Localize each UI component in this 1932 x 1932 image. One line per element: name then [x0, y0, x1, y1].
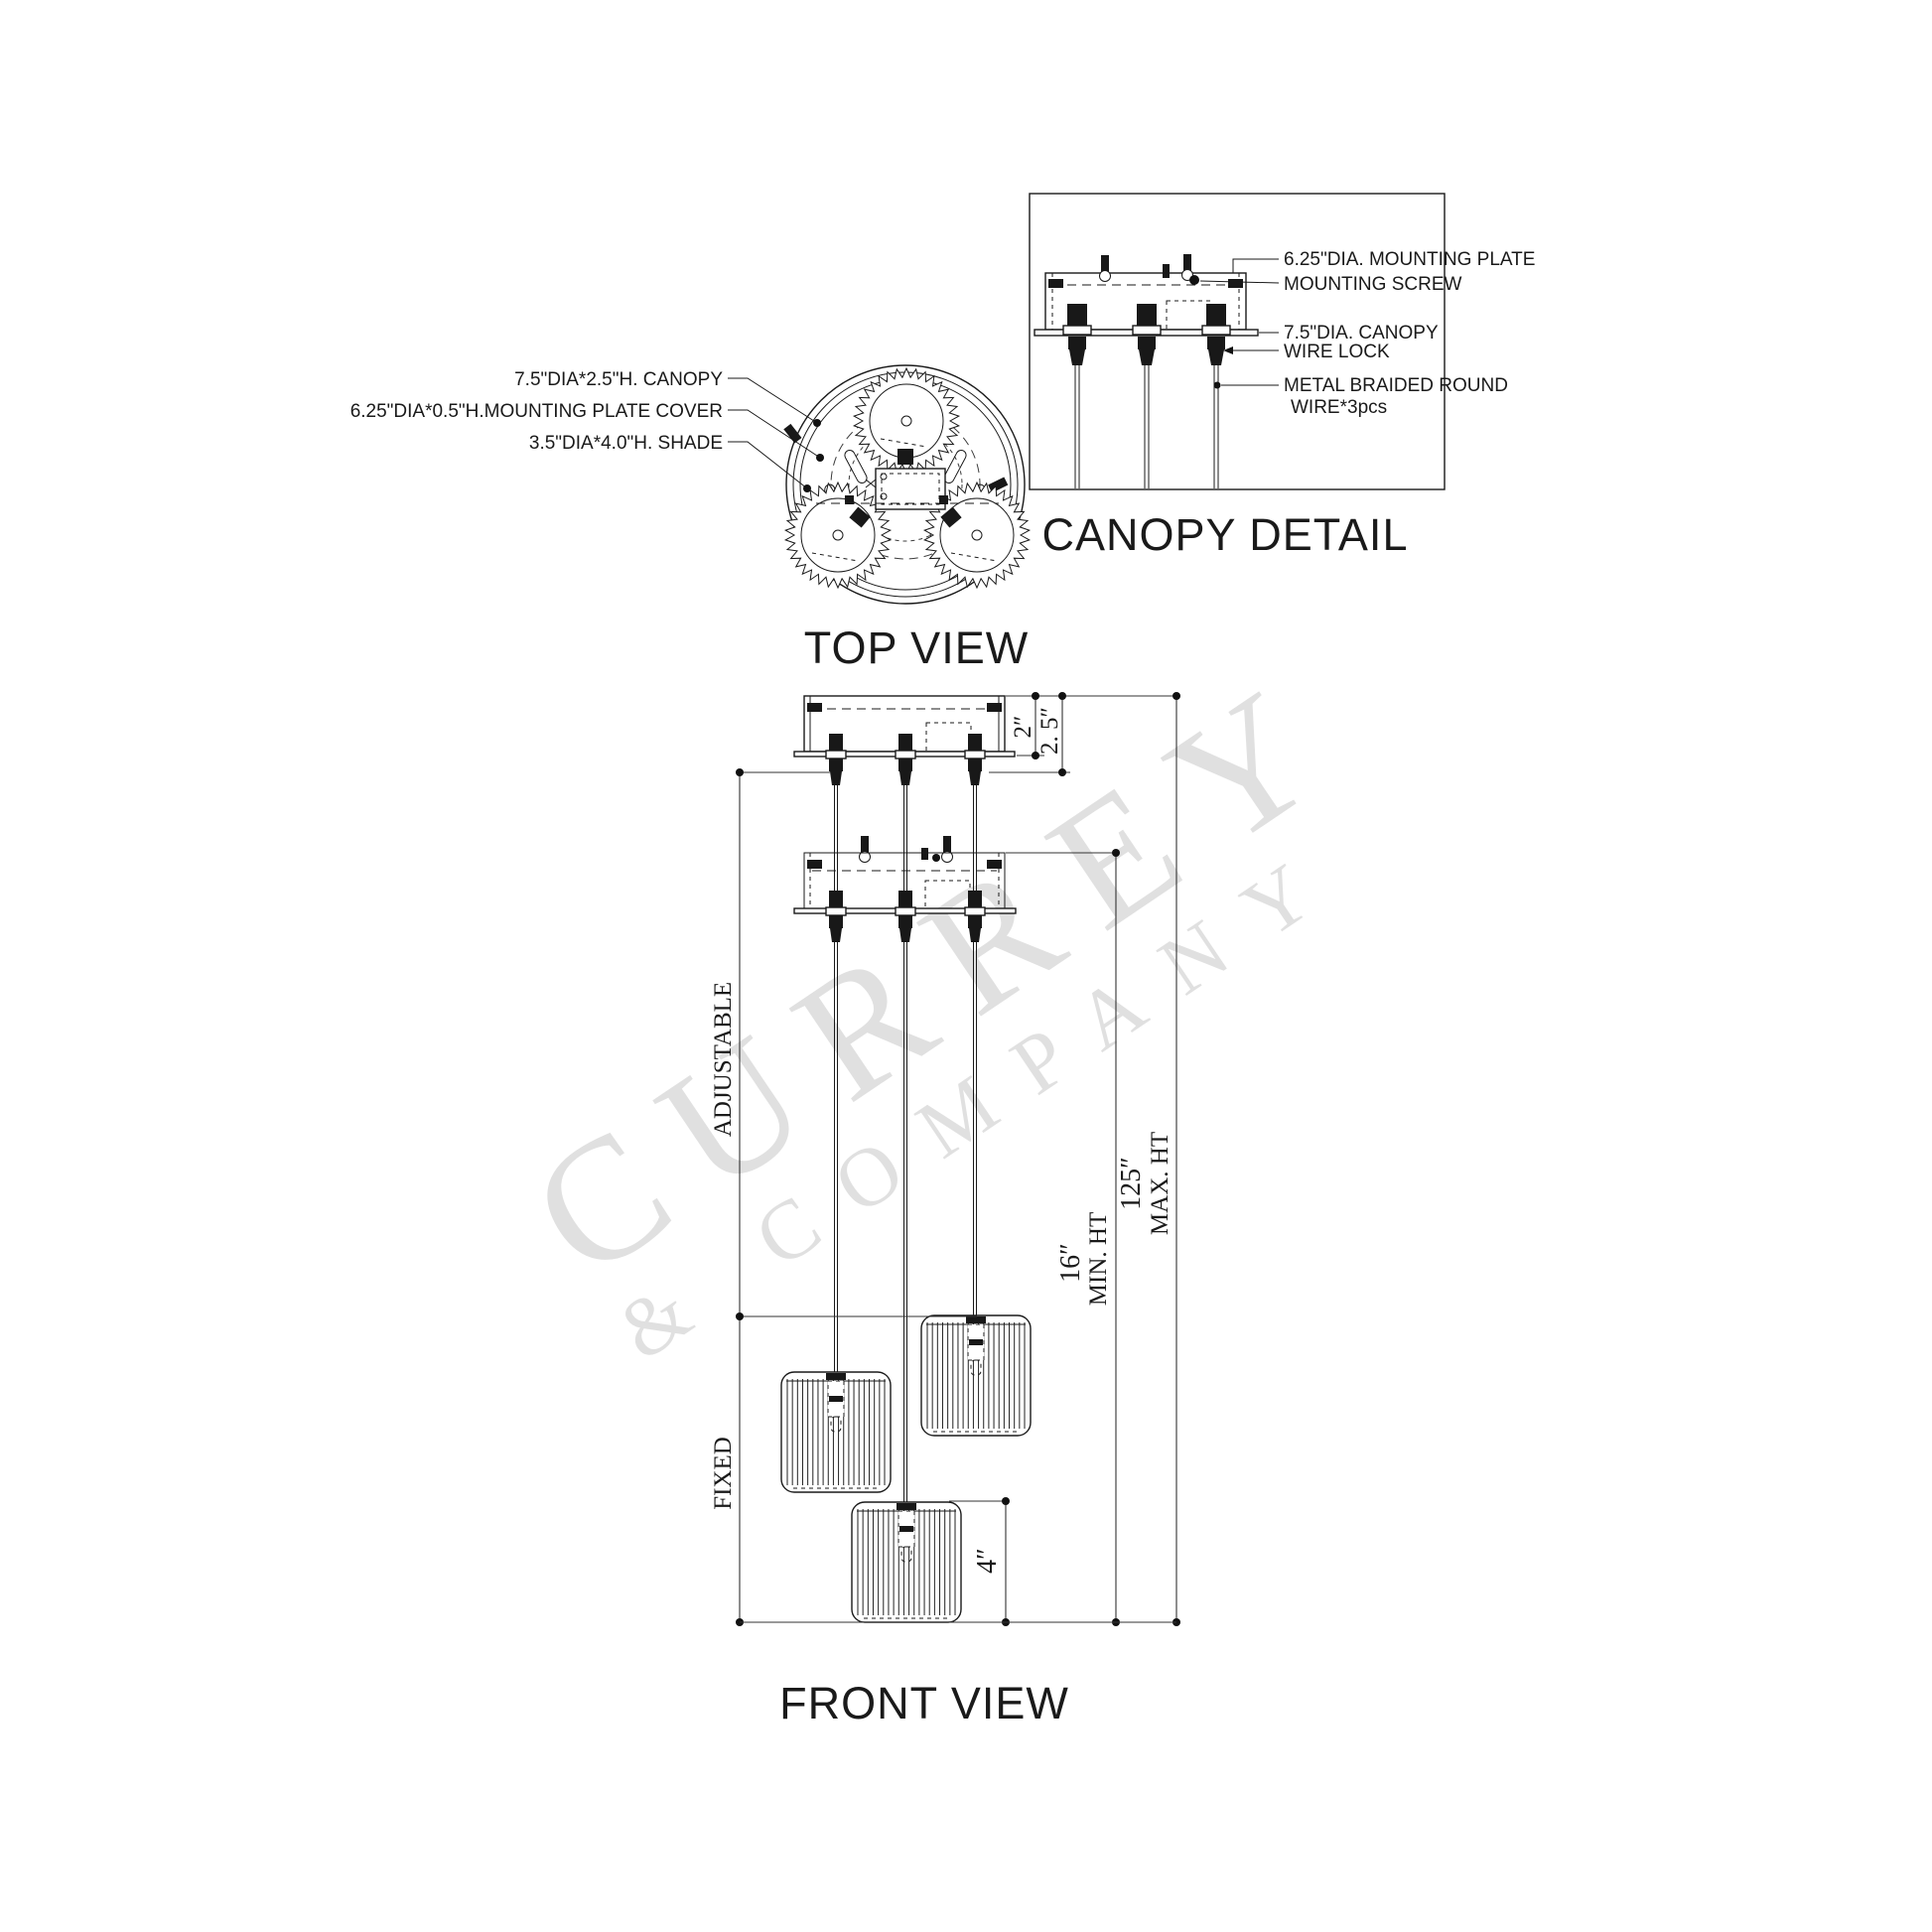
shade-bottom [852, 1502, 961, 1622]
dim-shade-height: 4″ [972, 1548, 1003, 1574]
label-detail-wire-1: METAL BRAIDED ROUND [1284, 375, 1508, 396]
top-view-title: TOP VIEW [804, 622, 1029, 673]
dim-canopy-total-height: 2. 5″ [1036, 707, 1063, 755]
dim-canopy-plate-height: 2″ [1010, 716, 1036, 739]
shade-left [781, 1372, 891, 1492]
front-view-title: FRONT VIEW [779, 1678, 1069, 1728]
top-view-labels: 7.5"DIA*2.5"H. CANOPY 6.25"DIA*0.5"H.MOU… [350, 369, 824, 492]
top-view: 7.5"DIA*2.5"H. CANOPY 6.25"DIA*0.5"H.MOU… [350, 365, 1030, 673]
label-mounting-plate-cover: 6.25"DIA*0.5"H.MOUNTING PLATE COVER [350, 401, 723, 422]
label-detail-wire-2: WIRE*3pcs [1291, 397, 1387, 418]
dim-min-height: 16″ [1055, 1243, 1086, 1283]
label-detail-wire-lock: WIRE LOCK [1284, 342, 1390, 362]
dim-adjustable: ADJUSTABLE [710, 982, 737, 1137]
label-shade: 3.5"DIA*4.0"H. SHADE [529, 433, 723, 454]
label-canopy: 7.5"DIA*2.5"H. CANOPY [514, 369, 723, 390]
label-detail-mounting-screw: MOUNTING SCREW [1284, 274, 1462, 295]
dim-fixed: FIXED [710, 1437, 737, 1510]
drawing-sheet: CURREY & COMPANY [0, 0, 1932, 1932]
canopy-detail: 6.25"DIA. MOUNTING PLATE MOUNTING SCREW … [1030, 194, 1535, 560]
shade-right [921, 1315, 1031, 1436]
dim-max-height: 125″ [1116, 1157, 1147, 1210]
label-detail-mounting-plate: 6.25"DIA. MOUNTING PLATE [1284, 249, 1535, 270]
label-detail-canopy: 7.5"DIA. CANOPY [1284, 323, 1439, 344]
dim-max-height-label: MAX. HT [1147, 1132, 1173, 1235]
canopy-detail-title: CANOPY DETAIL [1042, 509, 1409, 560]
technical-drawing: CURREY & COMPANY [0, 0, 1932, 1932]
dim-min-height-label: MIN. HT [1085, 1212, 1112, 1306]
